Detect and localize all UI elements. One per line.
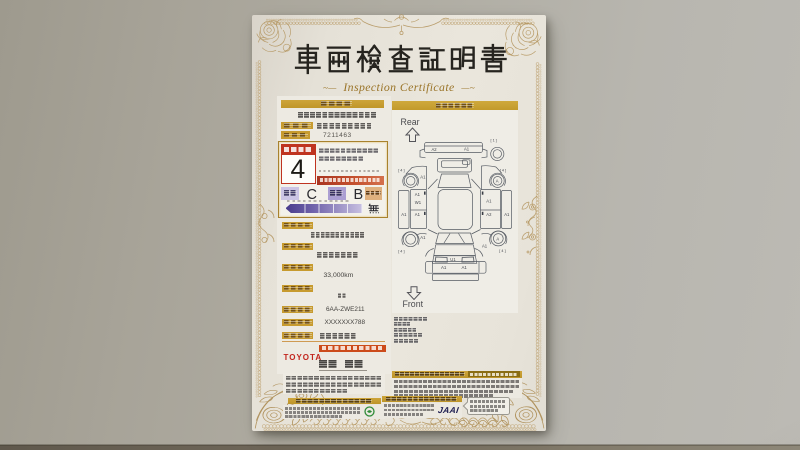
svg-text:A1: A1 [401,212,407,217]
svg-text:A: A [496,179,499,184]
svg-text:A1: A1 [420,175,426,180]
svg-text:A1: A1 [420,235,426,240]
svg-text:[ 4 ]: [ 4 ] [499,249,505,253]
svg-text:[ 4 ]: [ 4 ] [398,250,404,254]
svg-text:A1: A1 [482,244,488,249]
svg-text:A2: A2 [432,147,438,152]
svg-text:A2: A2 [486,212,492,217]
svg-text:A1: A1 [504,212,510,217]
svg-text:A1: A1 [486,198,492,203]
svg-text:A1: A1 [462,265,468,270]
svg-text:U1: U1 [450,257,456,262]
svg-text:A1: A1 [441,265,447,270]
svg-text:A: A [496,236,499,241]
svg-text:A1: A1 [464,146,470,151]
svg-text:A1: A1 [415,212,421,217]
svg-text:[ 1 ]: [ 1 ] [491,139,497,143]
svg-text:W1: W1 [415,200,422,205]
svg-text:A1: A1 [415,192,421,197]
svg-text:[ 4 ]: [ 4 ] [398,168,404,172]
svg-text:[ 4 ]: [ 4 ] [500,168,506,172]
